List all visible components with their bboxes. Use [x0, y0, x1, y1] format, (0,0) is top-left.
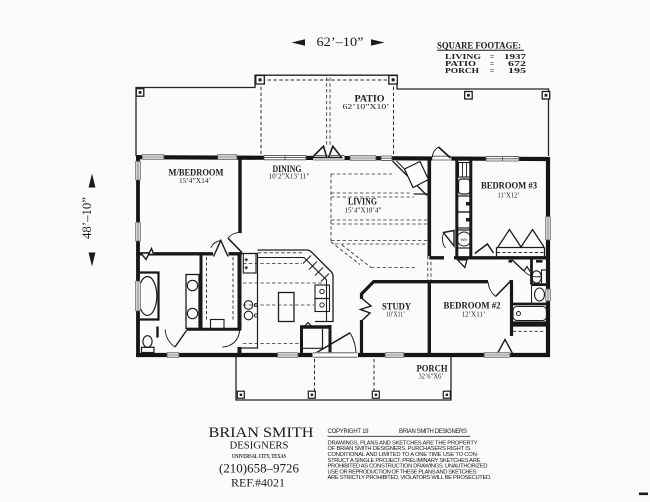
svg-text:10’2”X13’11”: 10’2”X13’11”	[269, 173, 310, 181]
svg-text:12’X11’: 12’X11’	[462, 310, 486, 318]
svg-text:LIVING: LIVING	[348, 197, 377, 207]
svg-text:WH: WH	[461, 237, 468, 242]
svg-text:10’X11’: 10’X11’	[386, 311, 405, 319]
svg-text:195: 195	[508, 66, 526, 75]
svg-text:(210)658–9726: (210)658–9726	[219, 461, 299, 475]
svg-text:32’6”X6’: 32’6”X6’	[419, 373, 444, 381]
svg-text:BRIAN SMITH DESIGNERS: BRIAN SMITH DESIGNERS	[399, 429, 467, 435]
svg-text:BEDROOM #3: BEDROOM #3	[481, 180, 537, 190]
svg-text:UNIVERSAL CITY, TEXAS: UNIVERSAL CITY, TEXAS	[232, 454, 286, 460]
svg-text:PATIO: PATIO	[355, 94, 385, 104]
svg-text:ARE STRICTLY PROHIBITED. VIOL: ARE STRICTLY PROHIBITED. VIOLATORS WILL …	[328, 475, 492, 481]
svg-text:COPYRIGHT 19: COPYRIGHT 19	[328, 429, 370, 435]
svg-text:REF.#4021: REF.#4021	[231, 477, 285, 489]
svg-text:DESIGNERS: DESIGNERS	[230, 439, 289, 451]
svg-text:15’4”X18’4”: 15’4”X18’4”	[345, 206, 382, 214]
svg-text:15’4”X14’: 15’4”X14’	[179, 177, 211, 185]
svg-text:62’10”X10’: 62’10”X10’	[343, 103, 390, 111]
svg-text:11’X12’: 11’X12’	[498, 192, 520, 200]
svg-text:BEDROOM #2: BEDROOM #2	[444, 301, 501, 311]
svg-text:M/BEDROOM: M/BEDROOM	[169, 167, 224, 177]
svg-text:48’–10”: 48’–10”	[80, 197, 94, 239]
svg-text:PORCH: PORCH	[445, 66, 479, 75]
svg-text:=: =	[490, 66, 494, 75]
svg-text:62’–10”: 62’–10”	[317, 35, 364, 49]
